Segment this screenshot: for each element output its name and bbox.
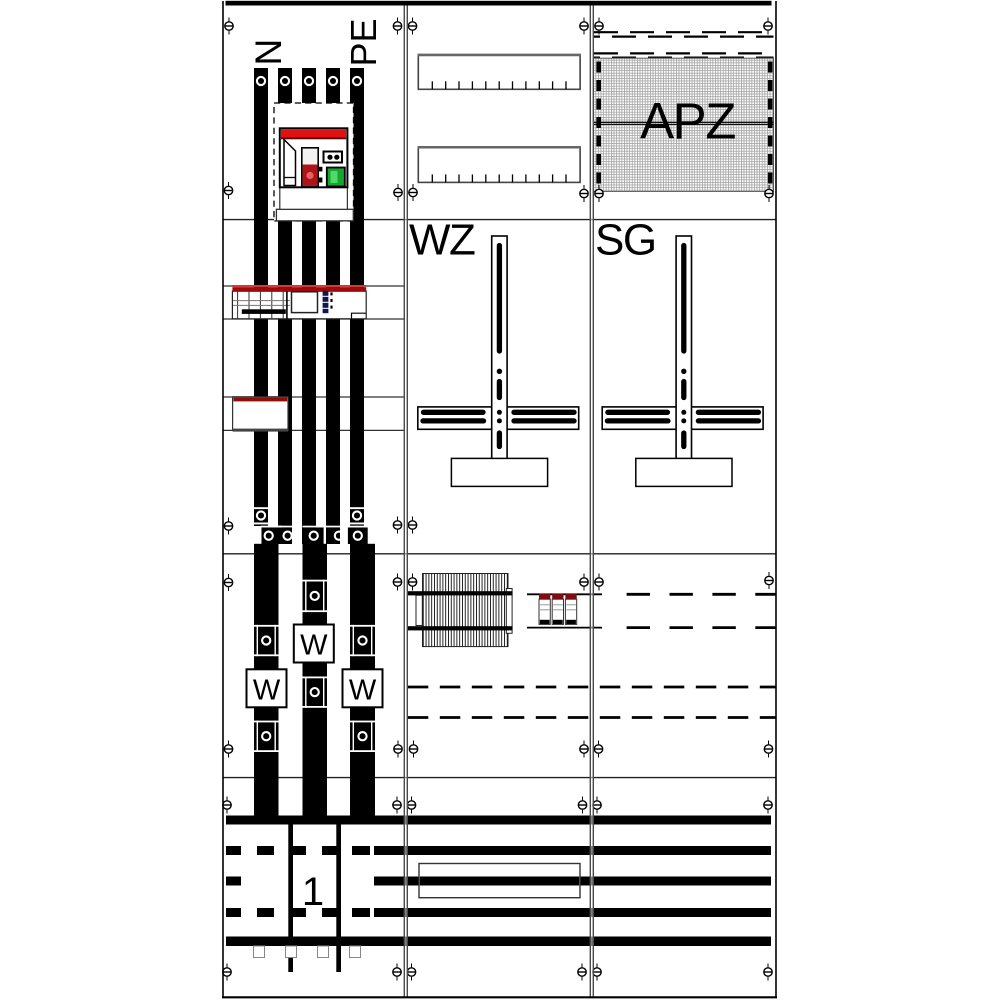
svg-text:PE: PE <box>343 18 384 66</box>
svg-text:1: 1 <box>302 870 324 914</box>
svg-text:APZ: APZ <box>640 93 735 150</box>
svg-text:WZ: WZ <box>409 216 475 265</box>
svg-text:W: W <box>300 630 328 662</box>
svg-text:W: W <box>349 675 377 707</box>
svg-text:N: N <box>248 39 289 66</box>
svg-text:SG: SG <box>595 216 656 265</box>
svg-text:W: W <box>253 675 281 707</box>
